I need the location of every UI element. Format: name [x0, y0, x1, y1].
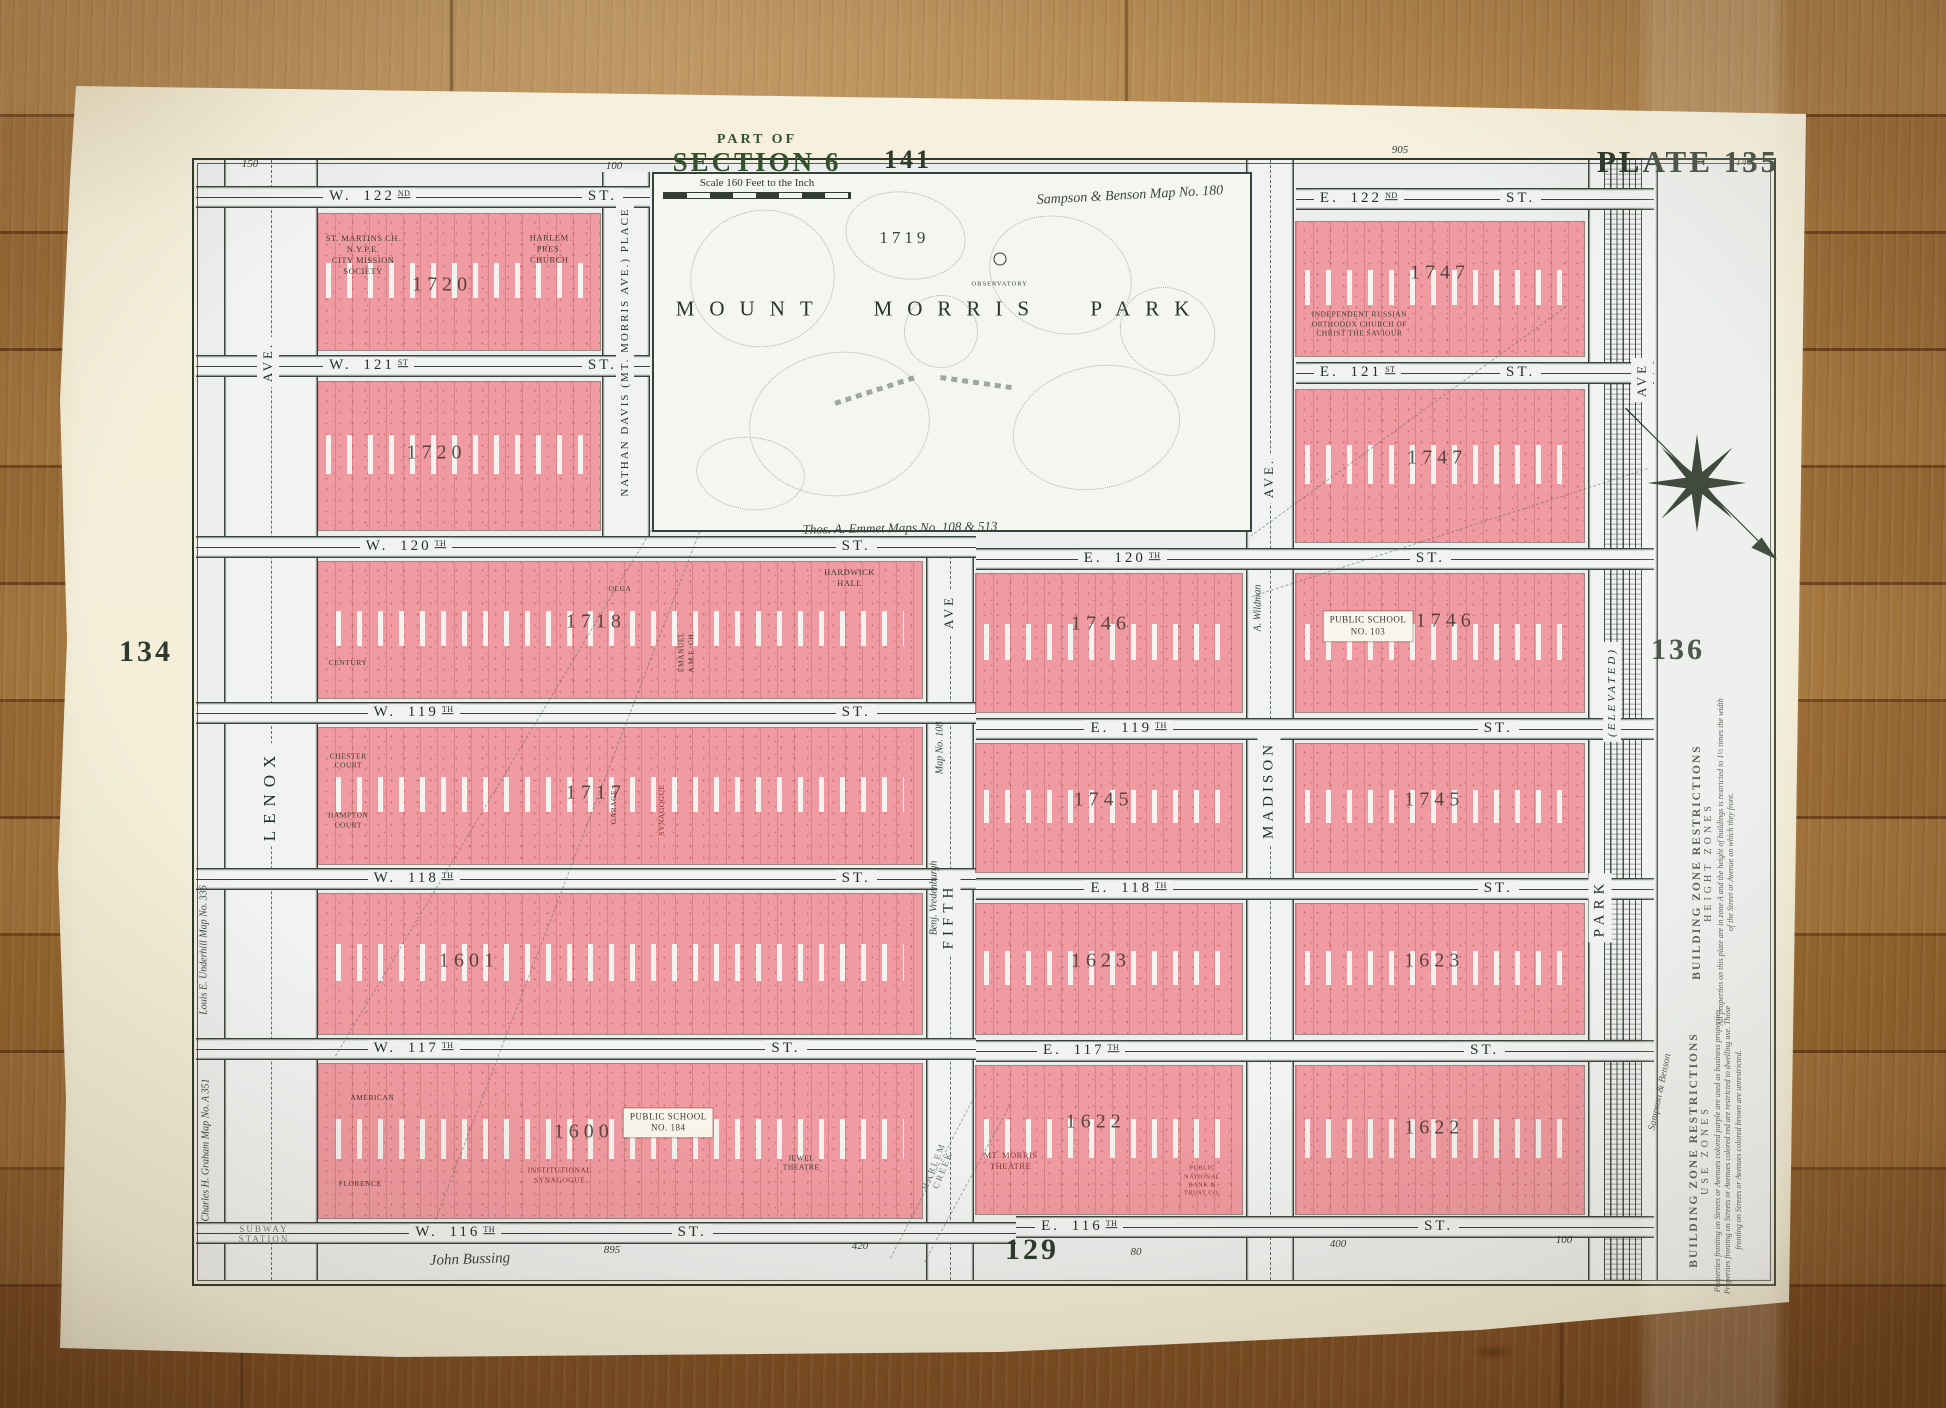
park-ave-label: (ELEVATED) [1603, 642, 1621, 742]
street-w119th: W. 119THST. [196, 702, 976, 724]
street-e120th: E. 120THST. [976, 548, 1654, 570]
title-part-of: PART OF [657, 132, 857, 148]
city-block-1623: 1623 [976, 904, 1242, 1034]
city-block-1745: 1745 [1296, 744, 1584, 872]
street-suffix: ST. [1478, 720, 1519, 737]
block-number: 1745 [1074, 789, 1134, 812]
block-number: 1745 [1404, 789, 1464, 812]
street-e118th: E. 118THST. [976, 878, 1654, 900]
street-label: W. 116TH [409, 1224, 501, 1241]
street-suffix: ST. [836, 870, 877, 887]
city-block-1747: 1747 [1296, 390, 1584, 542]
block-number: 1622 [1404, 1117, 1464, 1140]
photo-of-atlas-plate: MOUNT MORRIS PARK 1719 OBSERVATORY PART … [0, 0, 1946, 1408]
surveyor-script: Charles H. Graham Map No. A 351 [201, 1079, 212, 1222]
street-label: W. 119TH [368, 704, 460, 721]
landmark-label: GARAGE [609, 790, 619, 824]
zone-note-use: BUILDING ZONE RESTRICTIONS USE ZONES Pro… [1688, 1000, 1744, 1300]
landmark-label: SYNAGOGUE [657, 784, 667, 835]
zone-note-subheading: USE ZONES [1700, 1000, 1711, 1300]
street-label: W. 117TH [368, 1040, 460, 1057]
plate-number: 141 [884, 145, 932, 175]
zone-note-heading: BUILDING ZONE RESTRICTIONS [1691, 697, 1703, 1027]
block-number: 1720 [412, 273, 472, 296]
landmark-label: HAMPTON COURT [328, 811, 368, 831]
lenox-ave-label: LENOX [257, 744, 283, 847]
landmark-label: HARDWICK HALL [813, 567, 885, 589]
landmark-label: AMERICAN [350, 1093, 394, 1103]
mount-morris-park: MOUNT MORRIS PARK 1719 OBSERVATORY [652, 172, 1252, 532]
street-label: E. 120TH [1078, 550, 1167, 567]
zone-note-body: All properties on this plate are in zone… [1716, 697, 1737, 1027]
city-block-1622: 1622MT. MORRIS THEATREPUBLIC NATIONAL BA… [976, 1066, 1242, 1214]
street-w122nd: W. 122NDST. [196, 186, 650, 208]
margin-number: 420 [852, 1240, 869, 1252]
scale-bar [663, 192, 851, 199]
margin-number: 100 [1556, 1234, 1573, 1246]
street-label: W. 120TH [360, 538, 452, 555]
compass-rose-icon [1612, 398, 1782, 568]
scale-label: Scale 160 Feet to the Inch [657, 177, 857, 189]
park-ave-label: AVE [1631, 358, 1653, 402]
landmark-label: CENTURY [329, 658, 368, 668]
landmark-label: MT. MORRIS THEATRE [984, 1150, 1038, 1172]
street-label: E. 122ND [1314, 190, 1404, 207]
street-label: E. 118TH [1084, 880, 1172, 897]
zone-note-heading: BUILDING ZONE RESTRICTIONS [1688, 1000, 1700, 1300]
title-section: SECTION 6 [657, 148, 857, 176]
city-block-1745: 1745 [976, 744, 1242, 872]
street-suffix: ST. [1500, 364, 1541, 381]
block-number: 1600 [554, 1120, 614, 1143]
street-suffix: ST. [836, 538, 877, 555]
landmark-label: INSTITUTIONAL SYNAGOGUE [528, 1165, 592, 1185]
landmark-label: JEWEL THEATRE [783, 1153, 820, 1173]
surveyor-script: Benj. Vredenburgh [929, 861, 940, 936]
zone-note-body: Properties fronting on Streets or Avenue… [1713, 1000, 1744, 1300]
street-label: W. 122ND [323, 188, 416, 205]
plate-number: PLATE 135 [1597, 144, 1779, 180]
margin-number: 150 [242, 158, 259, 170]
margin-number: 905 [1392, 144, 1409, 156]
block-number: 1601 [439, 950, 499, 973]
street-label: W. 121ST [323, 357, 414, 374]
plate-number: 134 [119, 635, 173, 669]
landmark-label: ST. MARTINS CH. N.Y.P.E. CITY MISSION SO… [326, 233, 401, 277]
block-courtyard-slots [336, 944, 904, 980]
city-block-1600: 1600AMERICANFLORENCEPUBLIC SCHOOL NO. 18… [318, 1064, 922, 1218]
block-number: 1720 [406, 442, 466, 465]
block-number: 1623 [1071, 950, 1131, 973]
plate-number: 129 [1005, 1233, 1059, 1267]
park-ave-label: PARK [1589, 874, 1612, 943]
street-label: E. 121ST [1314, 364, 1402, 381]
park-path [674, 193, 850, 363]
city-block-1623: 1623 [1296, 904, 1584, 1034]
park-path [904, 295, 978, 368]
city-block-1747: 1747INDEPENDENT RUSSIAN ORTHODOX CHURCH … [1296, 222, 1584, 356]
landmark-label: PUBLIC NATIONAL BANK & TRUST CO. [1182, 1165, 1222, 1198]
block-number: 1747 [1410, 261, 1470, 284]
landmark-label: INDEPENDENT RUSSIAN ORTHODOX CHURCH OF C… [1312, 309, 1407, 338]
surveyor-script: John Bussing [430, 1250, 511, 1270]
title-block: PART OF SECTION 6 Scale 160 Feet to the … [657, 132, 857, 199]
surveyor-script: Map No. 108 [935, 722, 946, 775]
block-number: 1746 [1071, 612, 1131, 635]
landmark-label: EMANUEL A.M.E. CH. [677, 631, 697, 672]
landmark-label: CHESTER COURT [330, 751, 367, 771]
city-block-1622: 1622 [1296, 1066, 1584, 1214]
street-w118th: W. 118THST. [196, 868, 976, 890]
street-suffix: ST. [1410, 550, 1451, 567]
surveyor-script: Louis E. Underhill Map No. 336 [199, 885, 210, 1015]
city-block-1720: 1720 [318, 382, 600, 530]
lenox-ave-label: AVE. [257, 337, 279, 387]
zone-note-height: BUILDING ZONE RESTRICTIONS HEIGHT ZONES … [1691, 697, 1737, 1027]
street-suffix: ST. [1418, 1218, 1459, 1235]
street-suffix: ST. [1478, 880, 1519, 897]
city-block-1601: 1601 [318, 894, 922, 1034]
city-block-1720: 1720ST. MARTINS CH. N.Y.P.E. CITY MISSIO… [318, 214, 600, 350]
margin-number: 80 [1131, 1246, 1142, 1258]
margin-number: 100 [606, 160, 623, 172]
city-block-1746: 1746PUBLIC SCHOOL NO. 103 [1296, 574, 1584, 712]
block-number: 1746 [1416, 609, 1476, 632]
street-w117th: W. 117THST. [196, 1038, 976, 1060]
plate-number: 136 [1651, 633, 1705, 667]
street-label: E. 117TH [1037, 1042, 1125, 1059]
surveyor-script: Thos. A. Emmet Maps No. 108 & 513 [802, 518, 997, 537]
street-suffix: ST. [765, 1040, 806, 1057]
street-e119th: E. 119THST. [976, 718, 1654, 740]
landmark-label: HARLEM PRES. CHURCH [524, 233, 575, 266]
margin-number: 400 [1330, 1238, 1347, 1250]
street-suffix: ST. [1464, 1042, 1505, 1059]
block-number: 1622 [1066, 1111, 1126, 1134]
street-suffix: ST. [836, 704, 877, 721]
park-path [838, 182, 973, 289]
surveyor-script: A. Wildman [1253, 585, 1264, 632]
zone-note-subheading: HEIGHT ZONES [1703, 697, 1714, 1027]
madison-ave-label: MADISON [1258, 736, 1281, 844]
nathan-davis-place-label: NATHAN DAVIS (MT. MORRIS AVE.) PLACE [616, 202, 634, 501]
street-w116th: W. 116THST. [196, 1222, 1016, 1244]
street-suffix: ST. [1500, 190, 1541, 207]
street-e122nd: E. 122NDST. [1296, 188, 1654, 210]
park-steps [940, 376, 1012, 391]
margin-number: 895 [604, 1244, 621, 1256]
city-block-1717: 1717CHESTER COURTHAMPTON COURTGARAGESYNA… [318, 728, 922, 864]
fifth-ave-label: FIFTH [938, 878, 961, 955]
block-number: 1747 [1407, 447, 1467, 470]
fifth-ave-label: AVE [938, 590, 960, 634]
landmark-label: PUBLIC SCHOOL NO. 103 [1324, 612, 1413, 641]
subway-station-label: SUBWAY STATION [239, 1224, 290, 1244]
madison-ave-label: AVE. [1258, 453, 1280, 503]
street-suffix: ST. [672, 1224, 713, 1241]
landmark-label: PUBLIC SCHOOL NO. 184 [624, 1108, 713, 1137]
map-content: MOUNT MORRIS PARK 1719 OBSERVATORY PART … [0, 0, 1946, 1408]
landmark-label: FLORENCE [339, 1179, 382, 1189]
street-e117th: E. 117THST. [976, 1040, 1654, 1062]
street-w120th: W. 120THST. [196, 536, 976, 558]
street-label: E. 119TH [1084, 720, 1172, 737]
city-block-1746: 1746 [976, 574, 1242, 712]
block-number: 1623 [1404, 950, 1464, 973]
